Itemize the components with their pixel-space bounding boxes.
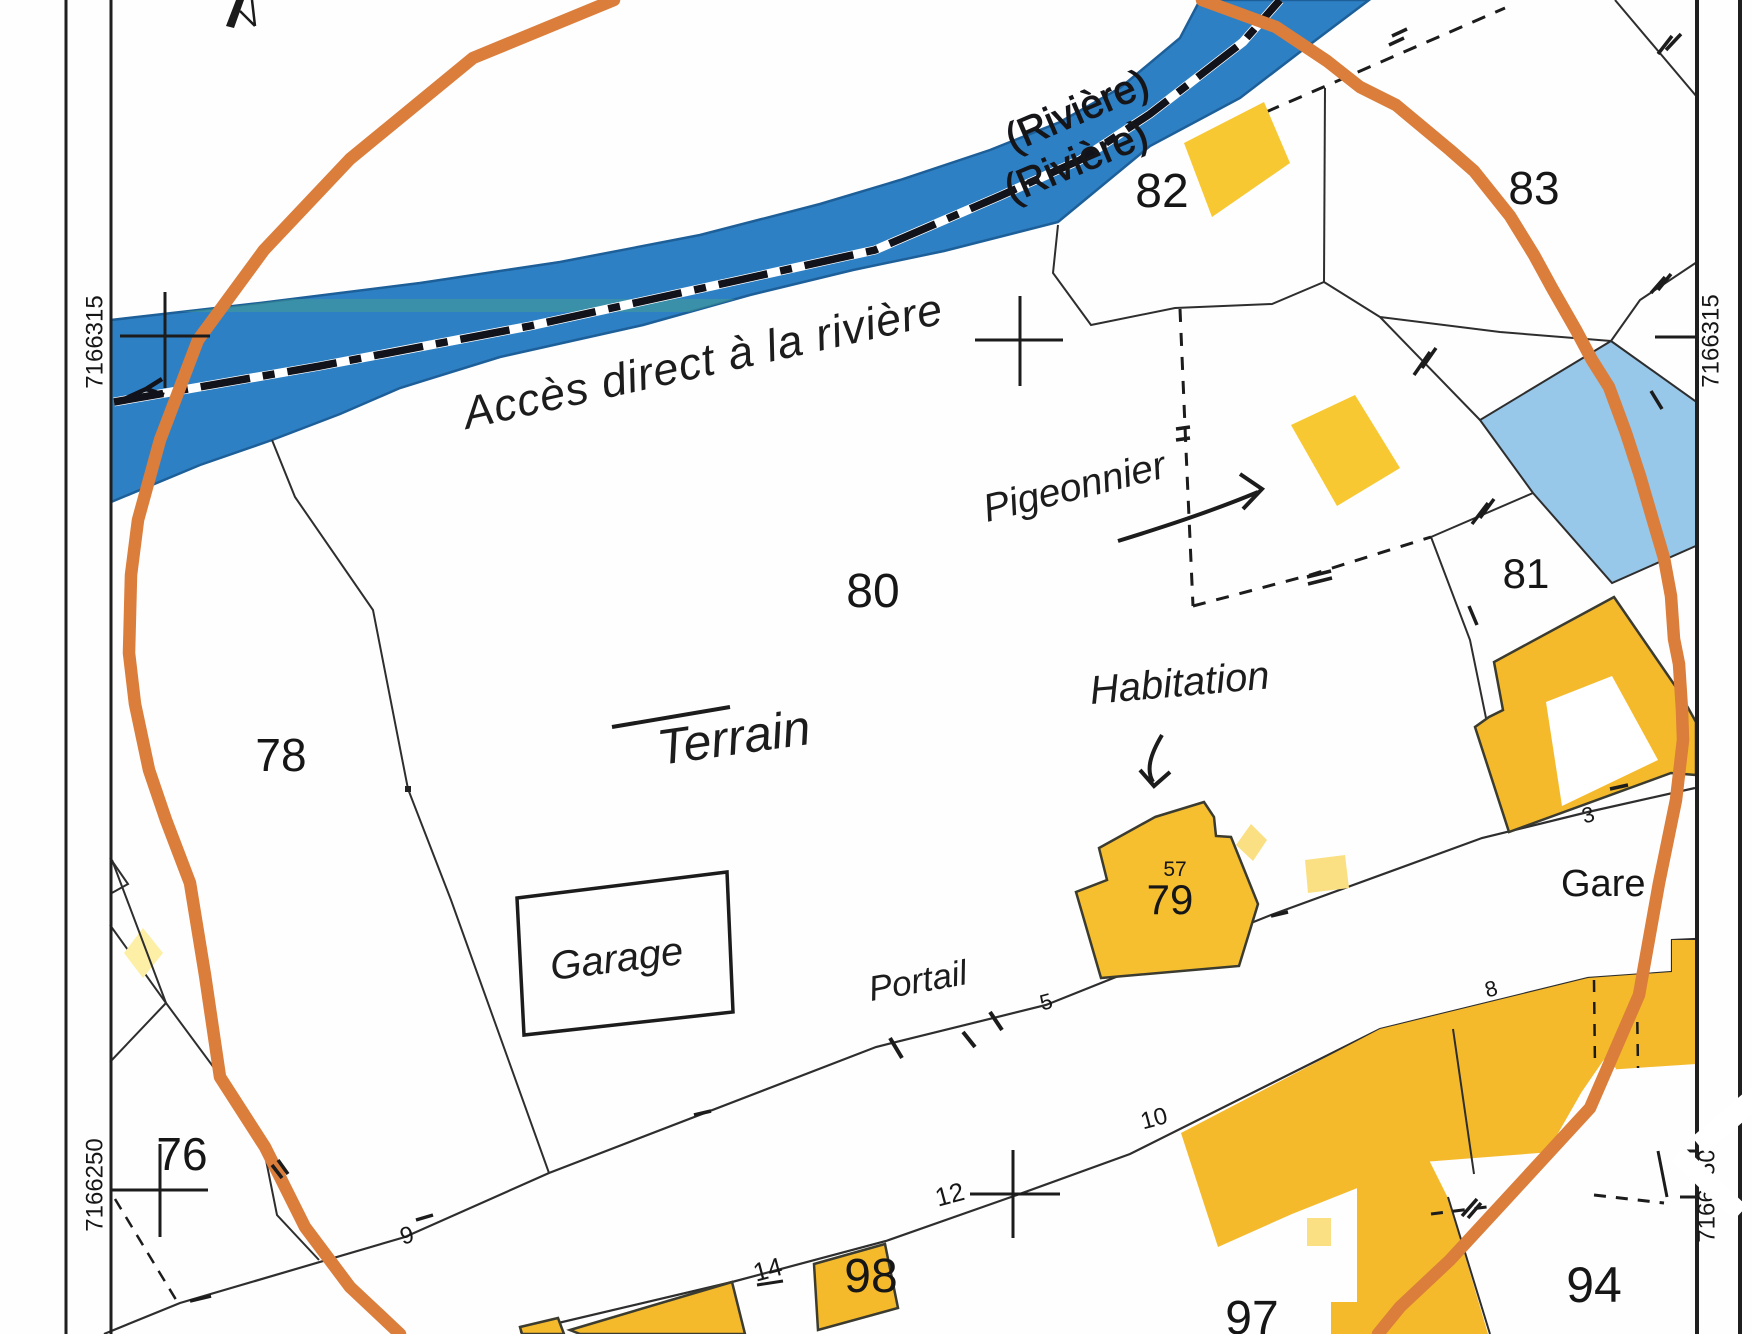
svg-text:76: 76 [156, 1128, 207, 1180]
svg-text:97: 97 [1225, 1292, 1278, 1334]
svg-text:10: 10 [1138, 1102, 1171, 1135]
svg-text:Terrain: Terrain [654, 699, 814, 776]
svg-text:12: 12 [932, 1176, 968, 1212]
svg-text:7166315: 7166315 [1697, 294, 1724, 387]
svg-text:7166250: 7166250 [81, 1138, 108, 1231]
svg-text:7166315: 7166315 [81, 295, 108, 388]
svg-text:9: 9 [397, 1221, 417, 1251]
svg-text:Portail: Portail [866, 953, 972, 1009]
svg-text:81: 81 [1503, 550, 1550, 597]
svg-text:80: 80 [846, 565, 899, 618]
svg-text:Gare: Gare [1561, 863, 1645, 905]
svg-text:Habitation: Habitation [1088, 653, 1271, 713]
svg-text:Garage: Garage [548, 929, 686, 989]
svg-text:98: 98 [844, 1250, 897, 1303]
svg-text:8: 8 [1482, 975, 1500, 1002]
svg-text:94: 94 [1566, 1257, 1622, 1313]
svg-text:Pigeonnier: Pigeonnier [979, 443, 1172, 530]
svg-text:3: 3 [1579, 801, 1597, 828]
svg-text:79: 79 [1147, 876, 1194, 923]
svg-text:78: 78 [255, 729, 306, 781]
svg-text:57: 57 [1163, 858, 1186, 881]
svg-text:82: 82 [1135, 165, 1188, 218]
svg-text:83: 83 [1508, 162, 1559, 214]
